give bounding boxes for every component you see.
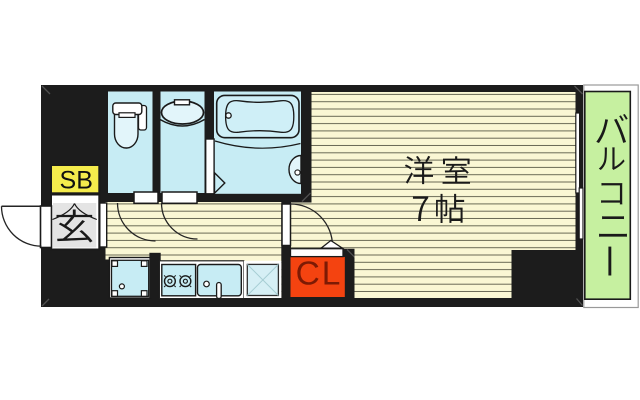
svg-text:CL: CL: [296, 255, 343, 292]
svg-text:SB: SB: [60, 167, 93, 195]
